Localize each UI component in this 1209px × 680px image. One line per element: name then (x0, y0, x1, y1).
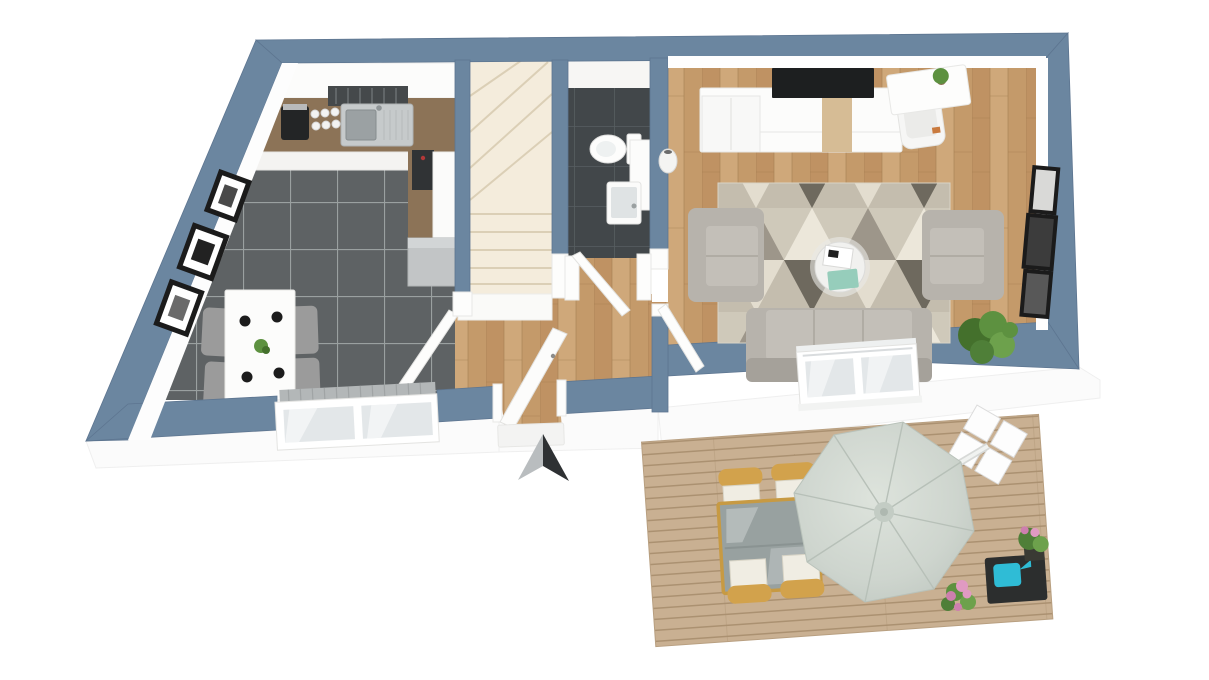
kitchen-window (274, 382, 439, 450)
wall-stairs-bath (552, 60, 568, 258)
sink-faucet (376, 105, 382, 111)
armchair-left (688, 208, 764, 302)
faucet (632, 204, 637, 209)
wicker-chair (727, 584, 772, 605)
wicker-chair (780, 578, 825, 599)
wood-accent-section (822, 96, 852, 152)
tv-screen (772, 68, 874, 98)
wall-kitchen-stairs (455, 60, 470, 296)
chair-cushion (729, 559, 767, 587)
watering-can (993, 563, 1022, 588)
mint-tray (827, 268, 859, 290)
coffee-table (810, 237, 870, 297)
floor-vase (659, 149, 677, 173)
armchair-right (922, 210, 1004, 300)
top-wall-inner-face (668, 56, 1046, 68)
fridge-column (433, 152, 458, 238)
floorplan-svg (0, 0, 1209, 680)
door-handle (551, 354, 555, 358)
floorplan-render (0, 0, 1209, 680)
wall-bottom-kitchen-right (437, 386, 499, 422)
entrance-step (498, 423, 565, 447)
living-window (794, 338, 922, 411)
coffee-machine (281, 106, 309, 140)
wall-hall-living-stub (652, 312, 668, 412)
bathroom-ledge (568, 58, 650, 88)
wall-bottom-hall (558, 376, 658, 414)
